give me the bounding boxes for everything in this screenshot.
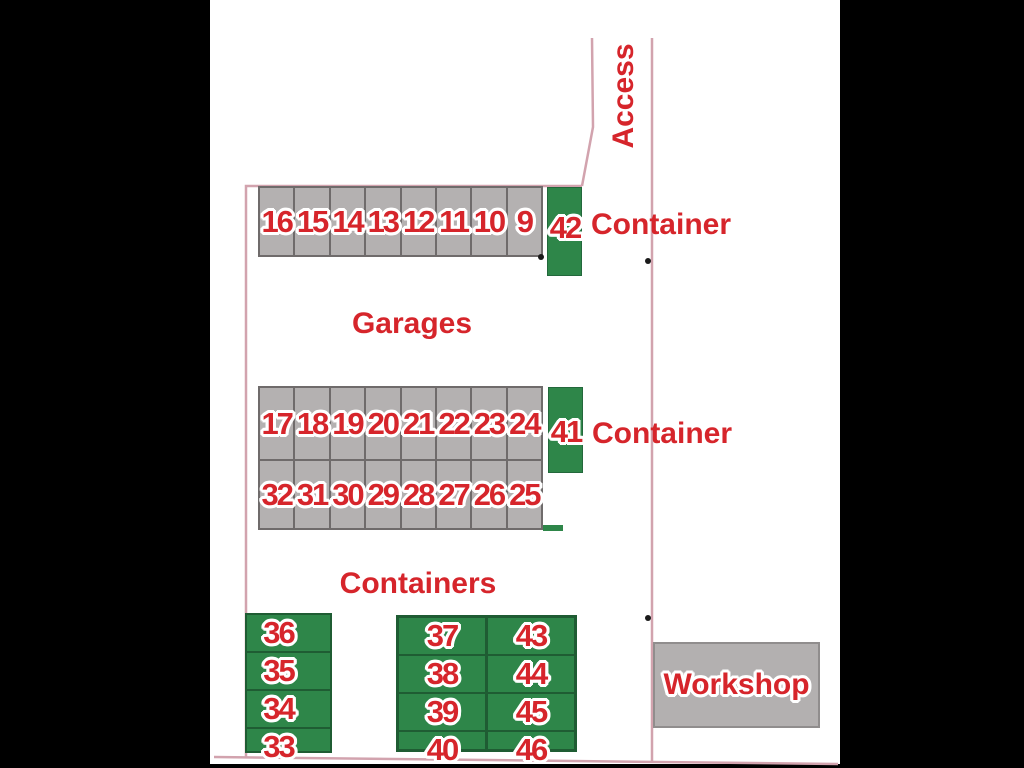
- container-41-number: 41: [551, 414, 581, 450]
- garage-stall: 17: [260, 388, 295, 459]
- container-cell: 37: [399, 618, 485, 656]
- garage-stall: 24: [508, 388, 541, 459]
- garage-stall: 28: [402, 461, 437, 528]
- green-edge-strip: [543, 525, 563, 531]
- garage-stall: 20: [366, 388, 401, 459]
- container-cell: 35: [247, 653, 330, 691]
- workshop-label: Workshop: [663, 668, 809, 702]
- container-number: 44: [516, 656, 546, 692]
- garage-number: 25: [509, 477, 539, 513]
- container-cell: 45: [488, 694, 574, 732]
- garage-block-top: 16 15 14 13 12 11 10 9: [258, 186, 543, 257]
- garage-stall: 27: [437, 461, 472, 528]
- garage-number: 21: [403, 406, 433, 442]
- container-number: 38: [427, 656, 457, 692]
- container-number: 39: [427, 694, 457, 730]
- garage-number: 17: [261, 406, 291, 442]
- plan-elements: 16 15 14 13 12 11 10 9 42 Container Gara…: [0, 0, 1024, 768]
- container-42-number: 42: [550, 210, 580, 246]
- container-cell: 33: [247, 729, 330, 765]
- boundary-dot: [538, 254, 544, 260]
- garage-number: 11: [439, 204, 468, 240]
- garage-number: 26: [474, 477, 504, 513]
- containers-label: Containers: [340, 567, 497, 601]
- garage-stall: 9: [508, 188, 541, 255]
- container-number: 34: [263, 691, 293, 727]
- garage-number: 19: [332, 406, 362, 442]
- garage-number: 29: [368, 477, 398, 513]
- container-cell: 36: [247, 615, 330, 653]
- container-number: 40: [427, 732, 457, 768]
- garage-stall: 30: [331, 461, 366, 528]
- garage-number: 12: [403, 204, 433, 240]
- garage-stall: 32: [260, 461, 295, 528]
- garage-stall: 23: [472, 388, 507, 459]
- container-number: 43: [516, 618, 546, 654]
- garage-stall: 10: [472, 188, 507, 255]
- boundary-dot: [645, 258, 651, 264]
- garage-stall: 18: [295, 388, 330, 459]
- garage-stall: 12: [402, 188, 437, 255]
- container-top-label: Container: [591, 208, 731, 242]
- garage-stall: 22: [437, 388, 472, 459]
- container-column-right: 43 44 45 46: [488, 618, 574, 749]
- container-column-left: 36 35 34 33: [245, 613, 332, 753]
- garage-stall: 29: [366, 461, 401, 528]
- garage-stall: 31: [295, 461, 330, 528]
- garage-stall: 25: [508, 461, 541, 528]
- garage-number: 10: [474, 204, 504, 240]
- garage-number: 13: [368, 204, 398, 240]
- garage-number: 27: [438, 477, 468, 513]
- boundary-dot: [645, 615, 651, 621]
- garage-number: 22: [438, 406, 468, 442]
- access-label: Access: [607, 43, 641, 148]
- garage-number: 30: [332, 477, 362, 513]
- container-cell: 46: [488, 732, 574, 768]
- garage-stall: 14: [331, 188, 366, 255]
- container-cell: 34: [247, 691, 330, 729]
- garage-stall: 21: [402, 388, 437, 459]
- container-cell: 43: [488, 618, 574, 656]
- garage-stall: 26: [472, 461, 507, 528]
- container-number: 37: [427, 618, 457, 654]
- garages-label: Garages: [352, 307, 472, 341]
- garage-stall: 11: [437, 188, 472, 255]
- garage-block-mid-front: 17 18 19 20 21 22 23 24: [258, 386, 543, 459]
- garage-number: 14: [332, 204, 362, 240]
- container-cell: 39: [399, 694, 485, 732]
- container-cell: 44: [488, 656, 574, 694]
- container-number: 33: [263, 729, 293, 765]
- garage-number: 32: [261, 477, 291, 513]
- garage-stall: 19: [331, 388, 366, 459]
- container-cell: 40: [399, 732, 485, 768]
- garage-number: 28: [403, 477, 433, 513]
- container-mid-label: Container: [592, 417, 732, 451]
- garage-number: 20: [368, 406, 398, 442]
- container-grid-middle: 37 38 39 40 43 44 45 46: [396, 615, 577, 752]
- garage-number: 31: [297, 477, 327, 513]
- garage-number: 16: [261, 204, 291, 240]
- garage-stall: 13: [366, 188, 401, 255]
- container-number: 45: [516, 694, 546, 730]
- garage-number: 24: [509, 406, 539, 442]
- letterbox-stage: 16 15 14 13 12 11 10 9 42 Container Gara…: [0, 0, 1024, 768]
- container-cell: 38: [399, 656, 485, 694]
- garage-number: 18: [297, 406, 327, 442]
- garage-stall: 16: [260, 188, 295, 255]
- workshop-box: Workshop: [653, 642, 820, 728]
- garage-stall: 15: [295, 188, 330, 255]
- garage-block-mid-back: 32 31 30 29 28 27 26 25: [258, 459, 543, 530]
- container-number: 36: [263, 615, 293, 651]
- container-column-mid: 37 38 39 40: [399, 618, 488, 749]
- garage-number: 15: [297, 204, 327, 240]
- garage-number: 23: [474, 406, 504, 442]
- garage-number: 9: [517, 204, 532, 240]
- container-number: 46: [516, 732, 546, 768]
- container-number: 35: [263, 653, 293, 689]
